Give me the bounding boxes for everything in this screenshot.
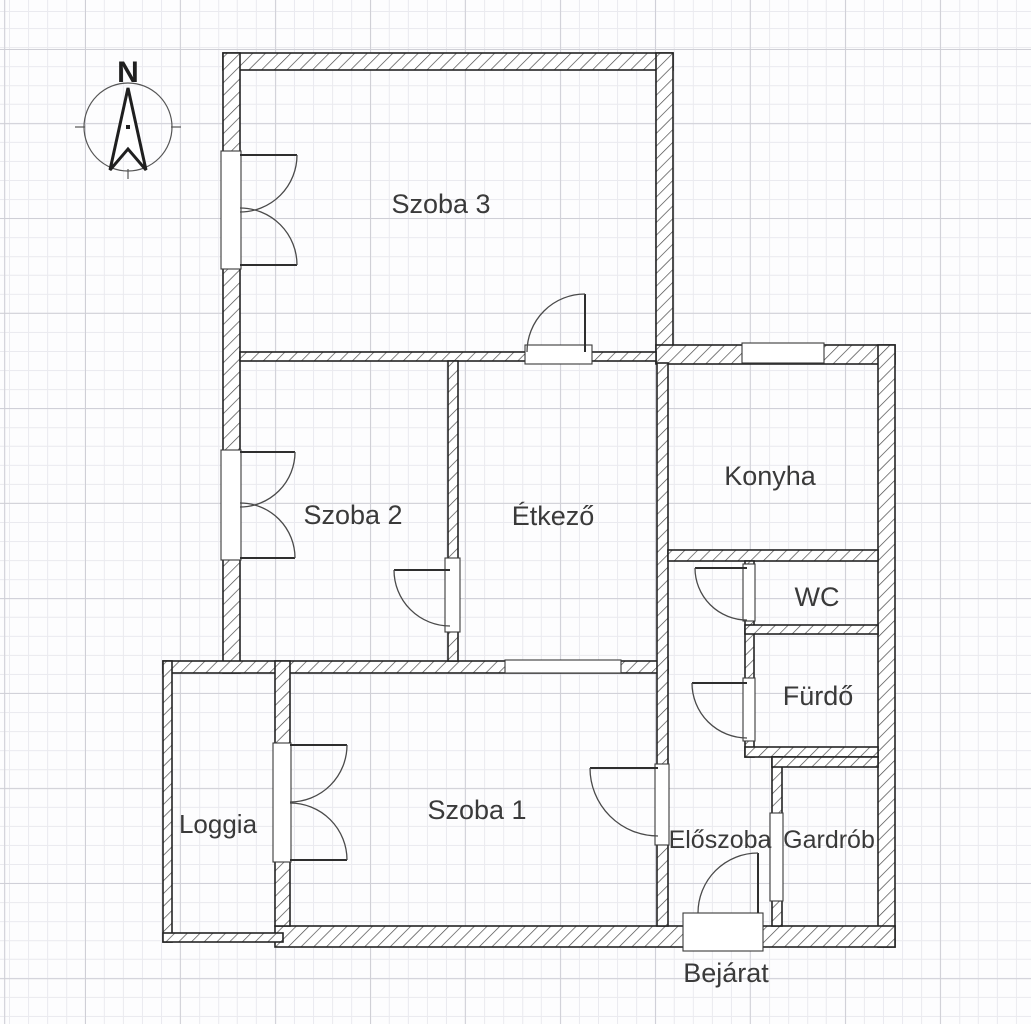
szoba2-window-casements: [240, 452, 295, 558]
szoba3-window-casements: [240, 155, 297, 265]
compass-north-label: N: [117, 56, 139, 89]
wc-door: [695, 568, 747, 620]
room-label-wc: WC: [795, 582, 840, 612]
entrance-label: Bejárat: [683, 958, 769, 988]
wall-szoba3-bottom: [240, 352, 656, 361]
room-label-furdo: Fürdő: [783, 681, 854, 711]
wall-gardrob-top: [772, 757, 878, 767]
furdo-door: [692, 683, 747, 738]
room-label-szoba2: Szoba 2: [303, 500, 402, 530]
room-label-etkezo: Étkező: [512, 501, 595, 531]
wc-door-opening: [743, 564, 755, 621]
szoba3-window-opening: [221, 151, 241, 269]
wall-wc-bottom: [745, 625, 878, 634]
wall-top-szoba3: [223, 53, 673, 70]
konyha-window: [742, 343, 824, 363]
entrance-threshold: [683, 913, 763, 951]
wall-furdo-bottom: [745, 747, 878, 757]
wall-left-outer: [223, 53, 240, 673]
szoba3-door-threshold: [525, 345, 592, 364]
room-label-szoba3: Szoba 3: [391, 189, 490, 219]
room-label-loggia: Loggia: [179, 809, 258, 839]
room-label-gardrob: Gardrób: [783, 826, 875, 854]
szoba3-door: [527, 294, 585, 352]
wall-loggia-bottom: [163, 933, 283, 942]
room-label-szoba1: Szoba 1: [427, 795, 526, 825]
szoba1-door: [590, 768, 658, 836]
loggia-balcony-door-casements: [290, 745, 347, 860]
loggia-door-opening: [273, 743, 291, 862]
wall-bottom-outer: [275, 926, 895, 947]
etkezo-passage-opening: [505, 660, 621, 673]
wall-szoba3-right: [656, 53, 673, 363]
szoba2-door: [394, 570, 450, 626]
wall-right-outer: [878, 345, 895, 947]
room-label-konyha: Konyha: [724, 461, 817, 491]
gardrob-door-opening: [770, 813, 783, 901]
furdo-door-opening: [743, 678, 755, 741]
entrance-door: [698, 853, 758, 913]
floor-plan-canvas: N Szoba 3 Szoba 2 Étkező Konyha WC Fürdő…: [0, 0, 1031, 1024]
compass-rose-icon: N: [75, 56, 181, 179]
wall-konyha-bottom: [668, 550, 878, 561]
szoba2-window-opening: [221, 450, 241, 560]
wall-loggia-left: [163, 661, 172, 942]
room-label-eloszoba: Előszoba: [669, 826, 772, 854]
szoba1-door-opening: [655, 764, 669, 845]
floor-plan-drawing: N Szoba 3 Szoba 2 Étkező Konyha WC Fürdő…: [0, 0, 1031, 1024]
